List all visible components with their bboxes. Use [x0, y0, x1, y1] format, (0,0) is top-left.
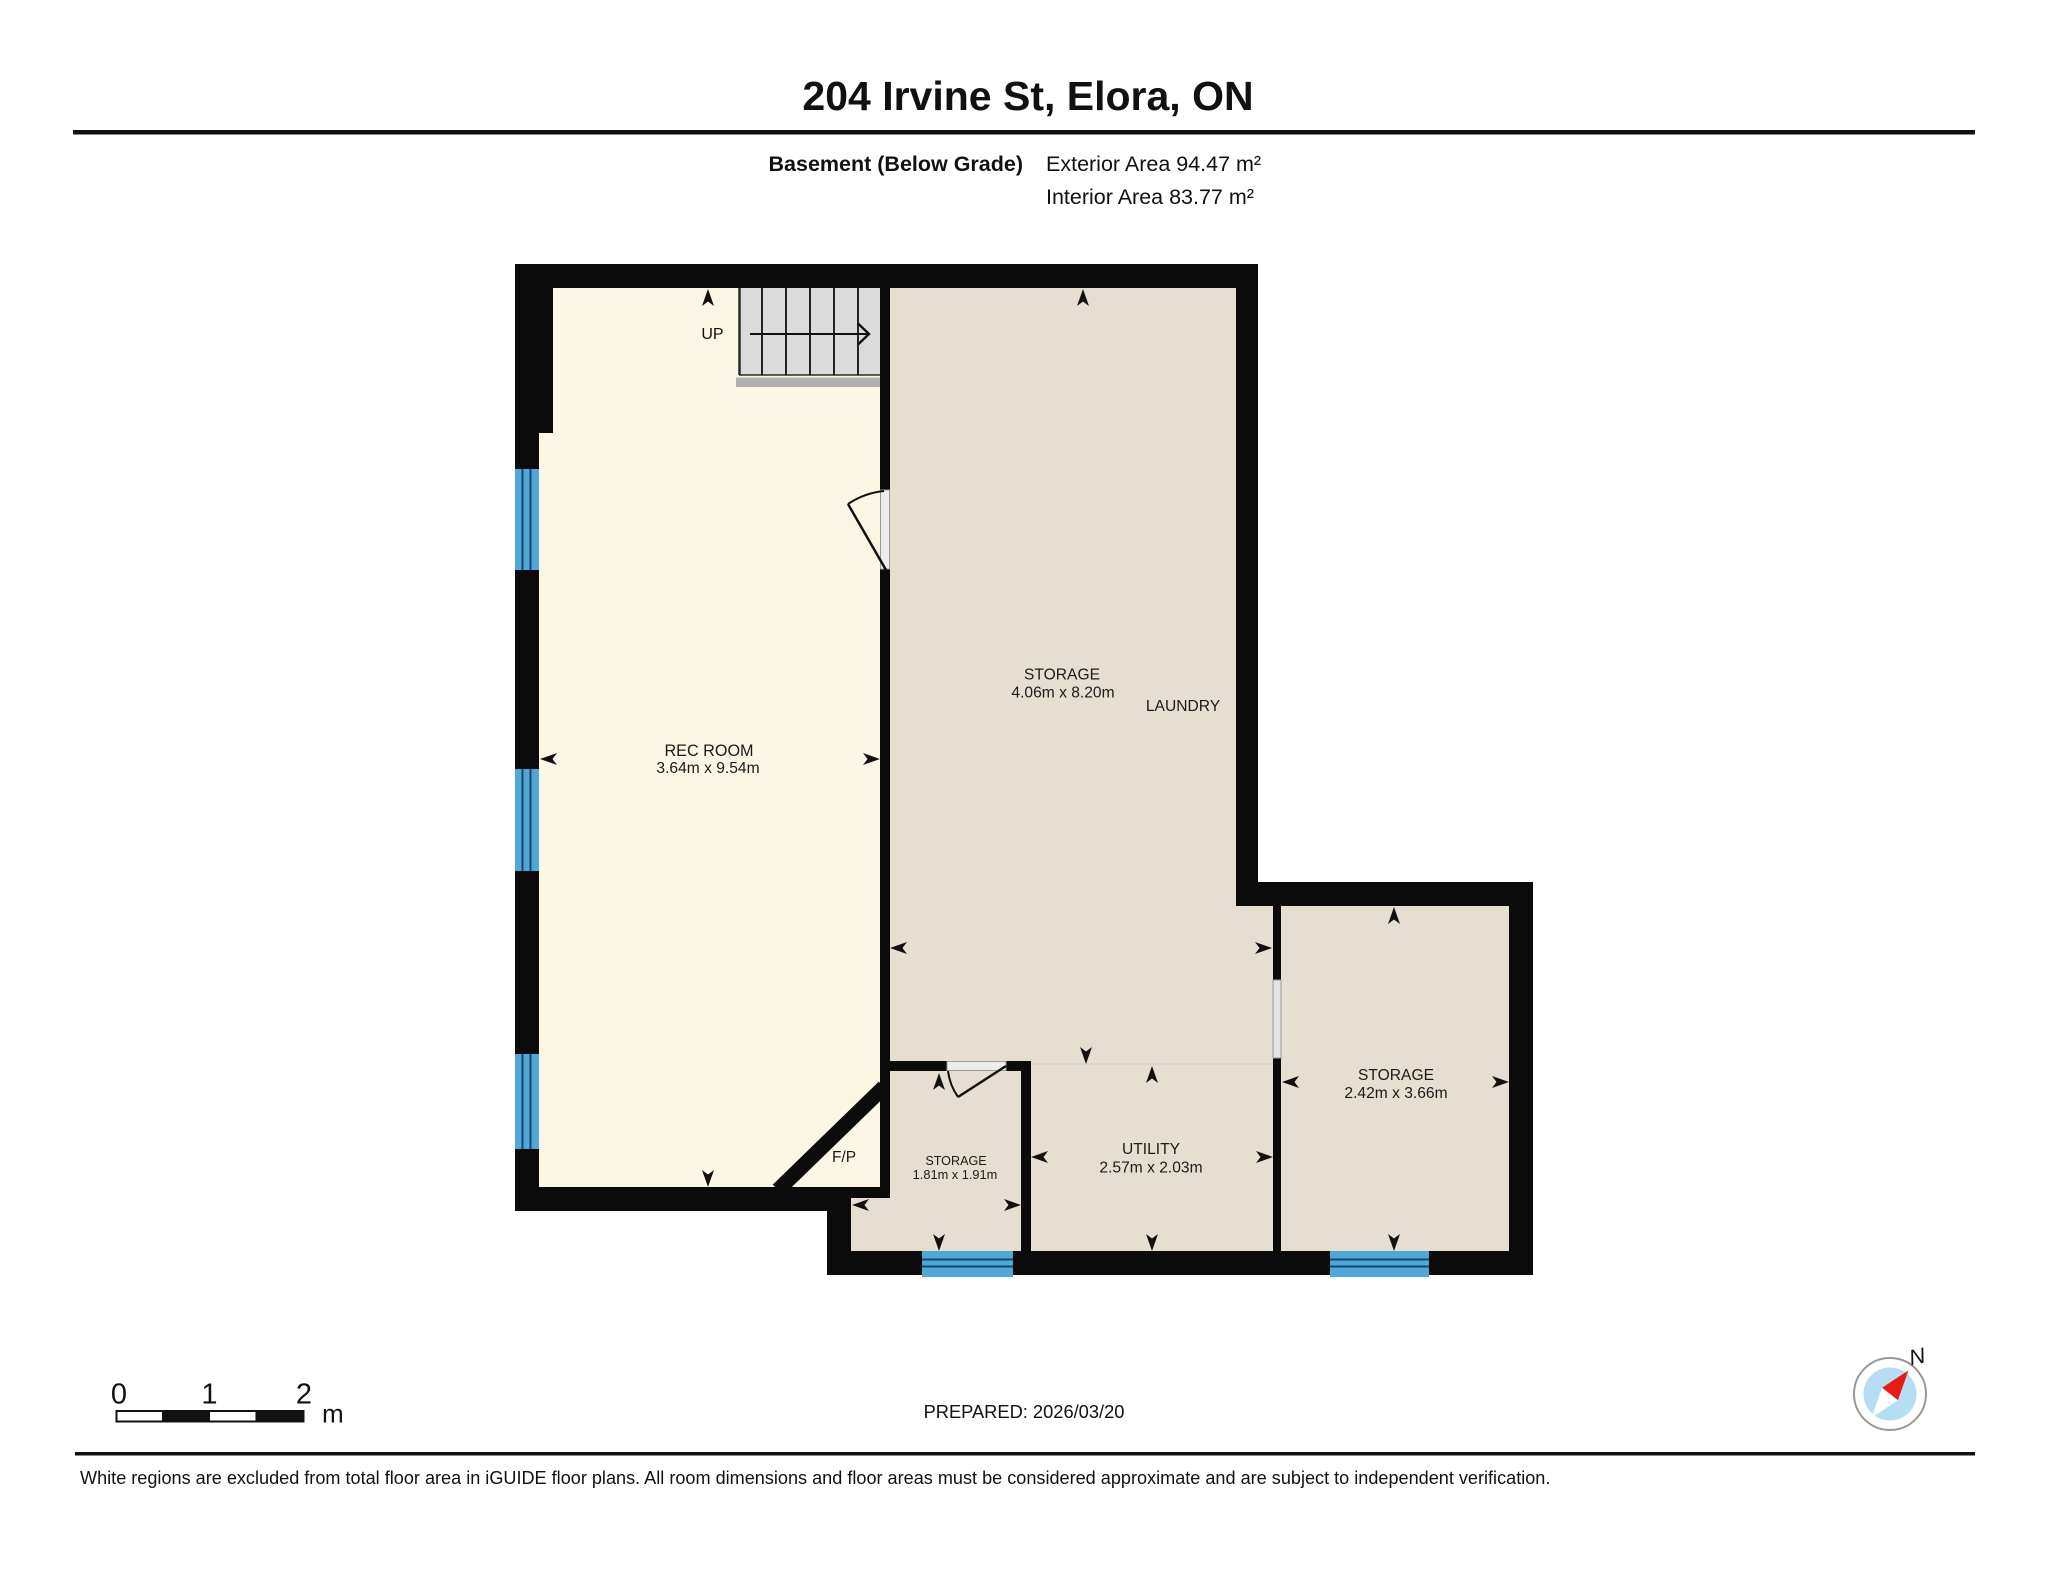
svg-text:1: 1 [201, 1379, 217, 1411]
svg-text:STORAGE: STORAGE [1024, 667, 1100, 684]
svg-text:2.57m x 2.03m: 2.57m x 2.03m [1099, 1160, 1202, 1177]
svg-text:White regions are excluded fro: White regions are excluded from total fl… [80, 1468, 1550, 1488]
svg-text:Basement (Below Grade): Basement (Below Grade) [769, 152, 1023, 176]
svg-text:PREPARED: 2026/03/20: PREPARED: 2026/03/20 [924, 1401, 1125, 1422]
svg-text:3.64m x 9.54m: 3.64m x 9.54m [656, 760, 759, 777]
svg-text:2.42m x 3.66m: 2.42m x 3.66m [1344, 1085, 1447, 1102]
svg-text:UTILITY: UTILITY [1122, 1141, 1181, 1158]
svg-text:LAUNDRY: LAUNDRY [1146, 698, 1221, 715]
svg-text:F/P: F/P [832, 1149, 856, 1166]
svg-text:m: m [322, 1399, 344, 1429]
svg-text:4.06m x 8.20m: 4.06m x 8.20m [1011, 685, 1114, 702]
svg-text:Interior Area 83.77 m²: Interior Area 83.77 m² [1046, 185, 1254, 209]
svg-text:2: 2 [296, 1379, 312, 1411]
svg-text:1.81m x 1.91m: 1.81m x 1.91m [913, 1167, 998, 1182]
svg-text:UP: UP [701, 326, 723, 343]
svg-text:Exterior Area 94.47 m²: Exterior Area 94.47 m² [1046, 152, 1261, 176]
svg-text:204 Irvine St, Elora, ON: 204 Irvine St, Elora, ON [802, 73, 1253, 119]
svg-text:STORAGE: STORAGE [925, 1154, 986, 1168]
svg-text:0: 0 [111, 1379, 127, 1411]
svg-text:REC ROOM: REC ROOM [664, 742, 753, 760]
svg-text:STORAGE: STORAGE [1358, 1067, 1434, 1084]
